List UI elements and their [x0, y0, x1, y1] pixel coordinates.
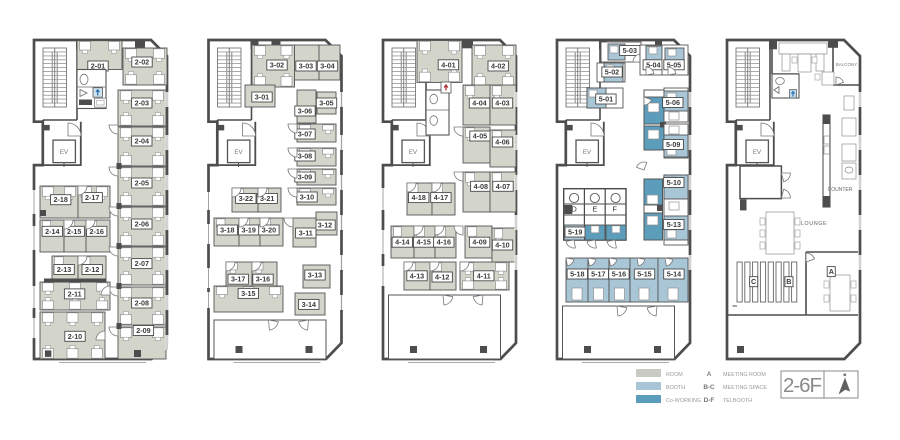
svg-text:E: E — [592, 205, 597, 214]
svg-text:4-14: 4-14 — [395, 238, 409, 247]
svg-text:3-16: 3-16 — [256, 275, 270, 284]
svg-text:4-08: 4-08 — [474, 182, 488, 191]
svg-text:5-03: 5-03 — [623, 46, 637, 55]
svg-text:3-13: 3-13 — [308, 271, 322, 280]
svg-text:5-19: 5-19 — [568, 228, 582, 237]
svg-text:4-03: 4-03 — [495, 99, 509, 108]
svg-text:EV: EV — [753, 149, 762, 156]
svg-text:3-20: 3-20 — [262, 226, 276, 235]
svg-text:3-17: 3-17 — [231, 275, 245, 284]
svg-text:EV: EV — [234, 149, 243, 156]
svg-text:3-03: 3-03 — [299, 62, 313, 71]
svg-text:B-C: B-C — [703, 384, 715, 391]
svg-text:2-06: 2-06 — [135, 220, 149, 229]
svg-text:4-10: 4-10 — [495, 241, 509, 250]
svg-text:3-01: 3-01 — [255, 93, 269, 102]
svg-text:EV: EV — [409, 149, 418, 156]
svg-text:Co-WORKING: Co-WORKING — [666, 398, 701, 404]
svg-text:5-14: 5-14 — [667, 270, 681, 279]
svg-text:A: A — [707, 371, 712, 378]
svg-text:4-11: 4-11 — [477, 271, 491, 280]
svg-text:5-01: 5-01 — [599, 95, 613, 104]
svg-text:2-15: 2-15 — [67, 227, 81, 236]
svg-text:3-07: 3-07 — [298, 130, 312, 139]
svg-text:4-13: 4-13 — [410, 271, 424, 280]
svg-text:4-09: 4-09 — [472, 238, 486, 247]
svg-text:5-15: 5-15 — [637, 270, 651, 279]
svg-text:4-16: 4-16 — [437, 238, 451, 247]
svg-text:4-12: 4-12 — [435, 273, 449, 282]
svg-text:5-02: 5-02 — [605, 68, 619, 77]
svg-text:2-17: 2-17 — [85, 193, 99, 202]
svg-text:F: F — [612, 205, 617, 214]
svg-text:EV: EV — [60, 149, 69, 156]
svg-text:2-14: 2-14 — [45, 227, 59, 236]
svg-text:3-05: 3-05 — [319, 99, 333, 108]
svg-text:3-18: 3-18 — [220, 226, 234, 235]
svg-text:LOUNGE: LOUNGE — [801, 221, 827, 227]
svg-text:2-08: 2-08 — [135, 299, 149, 308]
svg-text:3-10: 3-10 — [300, 193, 314, 202]
svg-text:2-04: 2-04 — [135, 137, 149, 146]
svg-text:4-02: 4-02 — [491, 62, 505, 71]
svg-text:2-12: 2-12 — [85, 265, 99, 274]
svg-text:5-06: 5-06 — [666, 98, 680, 107]
svg-text:MEETING ROOM: MEETING ROOM — [723, 372, 766, 378]
svg-text:5-10: 5-10 — [667, 178, 681, 187]
svg-text:3-11: 3-11 — [299, 229, 313, 238]
svg-text:2-07: 2-07 — [135, 259, 149, 268]
svg-text:4-18: 4-18 — [412, 193, 426, 202]
svg-text:COUNTER: COUNTER — [828, 187, 853, 193]
svg-text:3-22: 3-22 — [239, 194, 253, 203]
svg-text:MEETING SPACE: MEETING SPACE — [723, 385, 767, 391]
svg-text:5-13: 5-13 — [667, 220, 681, 229]
svg-text:5-09: 5-09 — [666, 140, 680, 149]
svg-text:2-16: 2-16 — [90, 227, 104, 236]
svg-text:2-11: 2-11 — [68, 289, 82, 298]
svg-text:2-02: 2-02 — [135, 58, 149, 67]
svg-text:3-06: 3-06 — [298, 107, 312, 116]
svg-text:3-08: 3-08 — [298, 152, 312, 161]
svg-text:5-17: 5-17 — [591, 270, 605, 279]
svg-text:4-04: 4-04 — [472, 99, 486, 108]
svg-text:C: C — [751, 277, 756, 286]
svg-text:B: B — [786, 277, 791, 286]
svg-text:3-09: 3-09 — [298, 173, 312, 182]
svg-text:ROOM: ROOM — [666, 372, 683, 378]
svg-text:5-16: 5-16 — [612, 270, 626, 279]
svg-text:D-F: D-F — [704, 397, 715, 404]
svg-text:4-07: 4-07 — [496, 182, 510, 191]
svg-text:BOOTH: BOOTH — [666, 385, 685, 391]
svg-text:TELBOOTH: TELBOOTH — [723, 398, 752, 404]
svg-text:2-10: 2-10 — [68, 332, 82, 341]
svg-text:2-13: 2-13 — [57, 265, 71, 274]
svg-text:3-14: 3-14 — [302, 300, 316, 309]
svg-text:3-04: 3-04 — [320, 62, 334, 71]
svg-text:3-12: 3-12 — [318, 221, 332, 230]
svg-text:4-01: 4-01 — [441, 60, 455, 69]
svg-text:4-15: 4-15 — [417, 238, 431, 247]
svg-text:2-03: 2-03 — [135, 99, 149, 108]
svg-text:4-05: 4-05 — [473, 132, 487, 141]
svg-text:3-02: 3-02 — [270, 61, 284, 70]
svg-text:4-06: 4-06 — [495, 138, 509, 147]
svg-text:4-17: 4-17 — [434, 193, 448, 202]
svg-text:BALCONY: BALCONY — [836, 62, 858, 67]
svg-text:3-15: 3-15 — [241, 289, 255, 298]
svg-text:5-18: 5-18 — [570, 270, 584, 279]
svg-text:2-18: 2-18 — [54, 195, 68, 204]
svg-text:2-6F: 2-6F — [783, 374, 822, 397]
svg-text:3-19: 3-19 — [242, 226, 256, 235]
svg-text:2-09: 2-09 — [136, 326, 150, 335]
svg-text:EV: EV — [583, 149, 592, 156]
svg-text:A: A — [829, 267, 834, 276]
svg-text:2-05: 2-05 — [135, 179, 149, 188]
